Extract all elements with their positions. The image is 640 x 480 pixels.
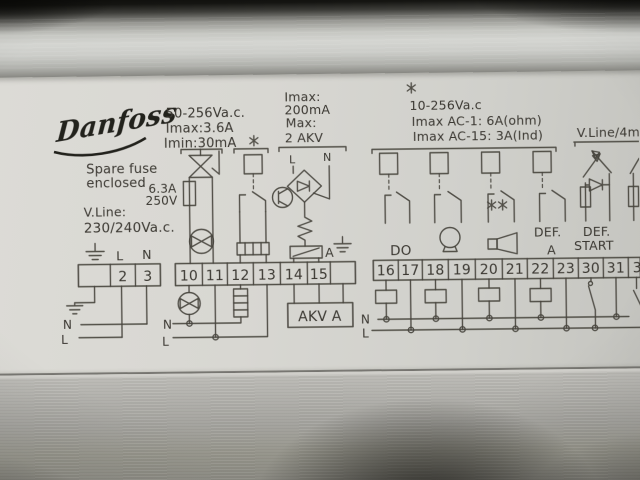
mid-bus-l: L xyxy=(162,335,169,349)
earth-icon xyxy=(334,237,351,252)
terminal-22: 22 xyxy=(531,261,549,277)
terminal-10: 10 xyxy=(180,268,198,284)
opto-input-icon xyxy=(580,151,612,221)
terminal-13: 13 xyxy=(258,268,276,284)
relay-range: 10-256Va.c xyxy=(409,97,482,113)
bulb-icon xyxy=(440,227,460,251)
danfoss-logo: Danfoss xyxy=(53,96,178,155)
relay-coil-loads xyxy=(375,278,551,319)
triac-icon xyxy=(189,149,219,177)
relay-bank xyxy=(380,151,566,223)
terminal-17: 17 xyxy=(401,263,419,279)
horn-icon xyxy=(488,233,517,254)
def-start-line1: DEF. xyxy=(583,224,611,239)
akv-box-label: AKV A xyxy=(298,309,342,325)
relay-ac1: Imax AC-1: 6A(ohm) xyxy=(412,112,542,128)
bridge-rectifier-icon xyxy=(287,166,329,202)
power-l-label: L xyxy=(116,248,123,263)
def-start-line2: START xyxy=(574,238,614,253)
brand-name: Danfoss xyxy=(54,96,178,149)
def-a-line2: A xyxy=(547,242,556,257)
diagram-text: Danfoss 50-256Va.c. Imax:3.6A Imin:30mA … xyxy=(53,85,640,350)
do-label: DO xyxy=(390,243,412,259)
right-bus-wires xyxy=(371,277,640,330)
triac-right-leg xyxy=(212,177,213,263)
transistor-icon xyxy=(272,187,292,207)
edge-partial-symbol xyxy=(633,277,640,305)
terminal-partial: 3 xyxy=(633,260,640,276)
spare-fuse-line2: enclosed xyxy=(86,176,146,192)
terminal-21: 21 xyxy=(506,262,524,278)
relay-coil-icon xyxy=(244,155,262,192)
terminal-20: 20 xyxy=(480,262,498,278)
opto-input-partial-icon xyxy=(628,158,640,220)
terminal-19: 19 xyxy=(453,262,471,278)
mid-bus-n: N xyxy=(163,318,172,332)
terminal-23: 23 xyxy=(557,261,575,277)
wiring-diagram: Danfoss 50-256Va.c. Imax:3.6A Imin:30mA … xyxy=(0,0,640,480)
terminal-15: 15 xyxy=(310,267,328,283)
terminal-11: 11 xyxy=(206,268,224,284)
switch-icon xyxy=(588,278,595,328)
terminal-3: 3 xyxy=(143,269,152,285)
power-bus-n: N xyxy=(63,318,72,332)
resistor-load-icon xyxy=(234,285,248,317)
terminal-30: 30 xyxy=(582,261,600,277)
terminal-31: 31 xyxy=(607,261,625,277)
power-bus-l: L xyxy=(61,333,68,347)
def-a-line1: DEF. xyxy=(534,224,562,239)
power-n-label: N xyxy=(142,247,152,262)
vline-right-label: V.Line/4m xyxy=(577,124,640,140)
lamp-icon xyxy=(189,229,213,253)
terminal-12: 12 xyxy=(231,268,249,284)
relay-ac15: Imax AC-15: 3A(Ind) xyxy=(413,127,543,143)
relays-bus-l: L xyxy=(362,326,369,340)
valve-a-label: A xyxy=(325,245,334,260)
akv-max-label: Max: xyxy=(286,115,317,130)
vline-left-label: V.Line: xyxy=(84,204,127,219)
terminal-16: 16 xyxy=(377,263,395,279)
relays-bus-n: N xyxy=(361,312,370,326)
akv-l-label: L xyxy=(289,153,296,166)
supply-range: 50-256Va.c. xyxy=(165,106,245,122)
supply-imin: Imin:30mA xyxy=(164,136,237,152)
vline-left-value: 230/240Va.c. xyxy=(84,220,175,237)
akv-max-value: 2 AKV xyxy=(285,130,324,145)
supply-imax: Imax:3.6A xyxy=(166,121,234,137)
terminal-2: 2 xyxy=(118,269,127,285)
fuse-volts: 250V xyxy=(145,194,178,208)
terminal-14: 14 xyxy=(285,267,303,283)
lamp-load-icon xyxy=(178,285,200,323)
photo-rotation-wrapper: Danfoss 50-256Va.c. Imax:3.6A Imin:30mA … xyxy=(0,0,640,480)
terminal-18: 18 xyxy=(426,263,444,279)
relay-contact-icon xyxy=(239,192,265,212)
akv-n-label: N xyxy=(323,151,332,164)
solenoid-valve-icon xyxy=(290,246,322,262)
device-photo: Danfoss 50-256Va.c. Imax:3.6A Imin:30mA … xyxy=(0,0,640,480)
resistor-icon xyxy=(237,212,270,263)
coil-zigzag-icon xyxy=(298,202,312,246)
